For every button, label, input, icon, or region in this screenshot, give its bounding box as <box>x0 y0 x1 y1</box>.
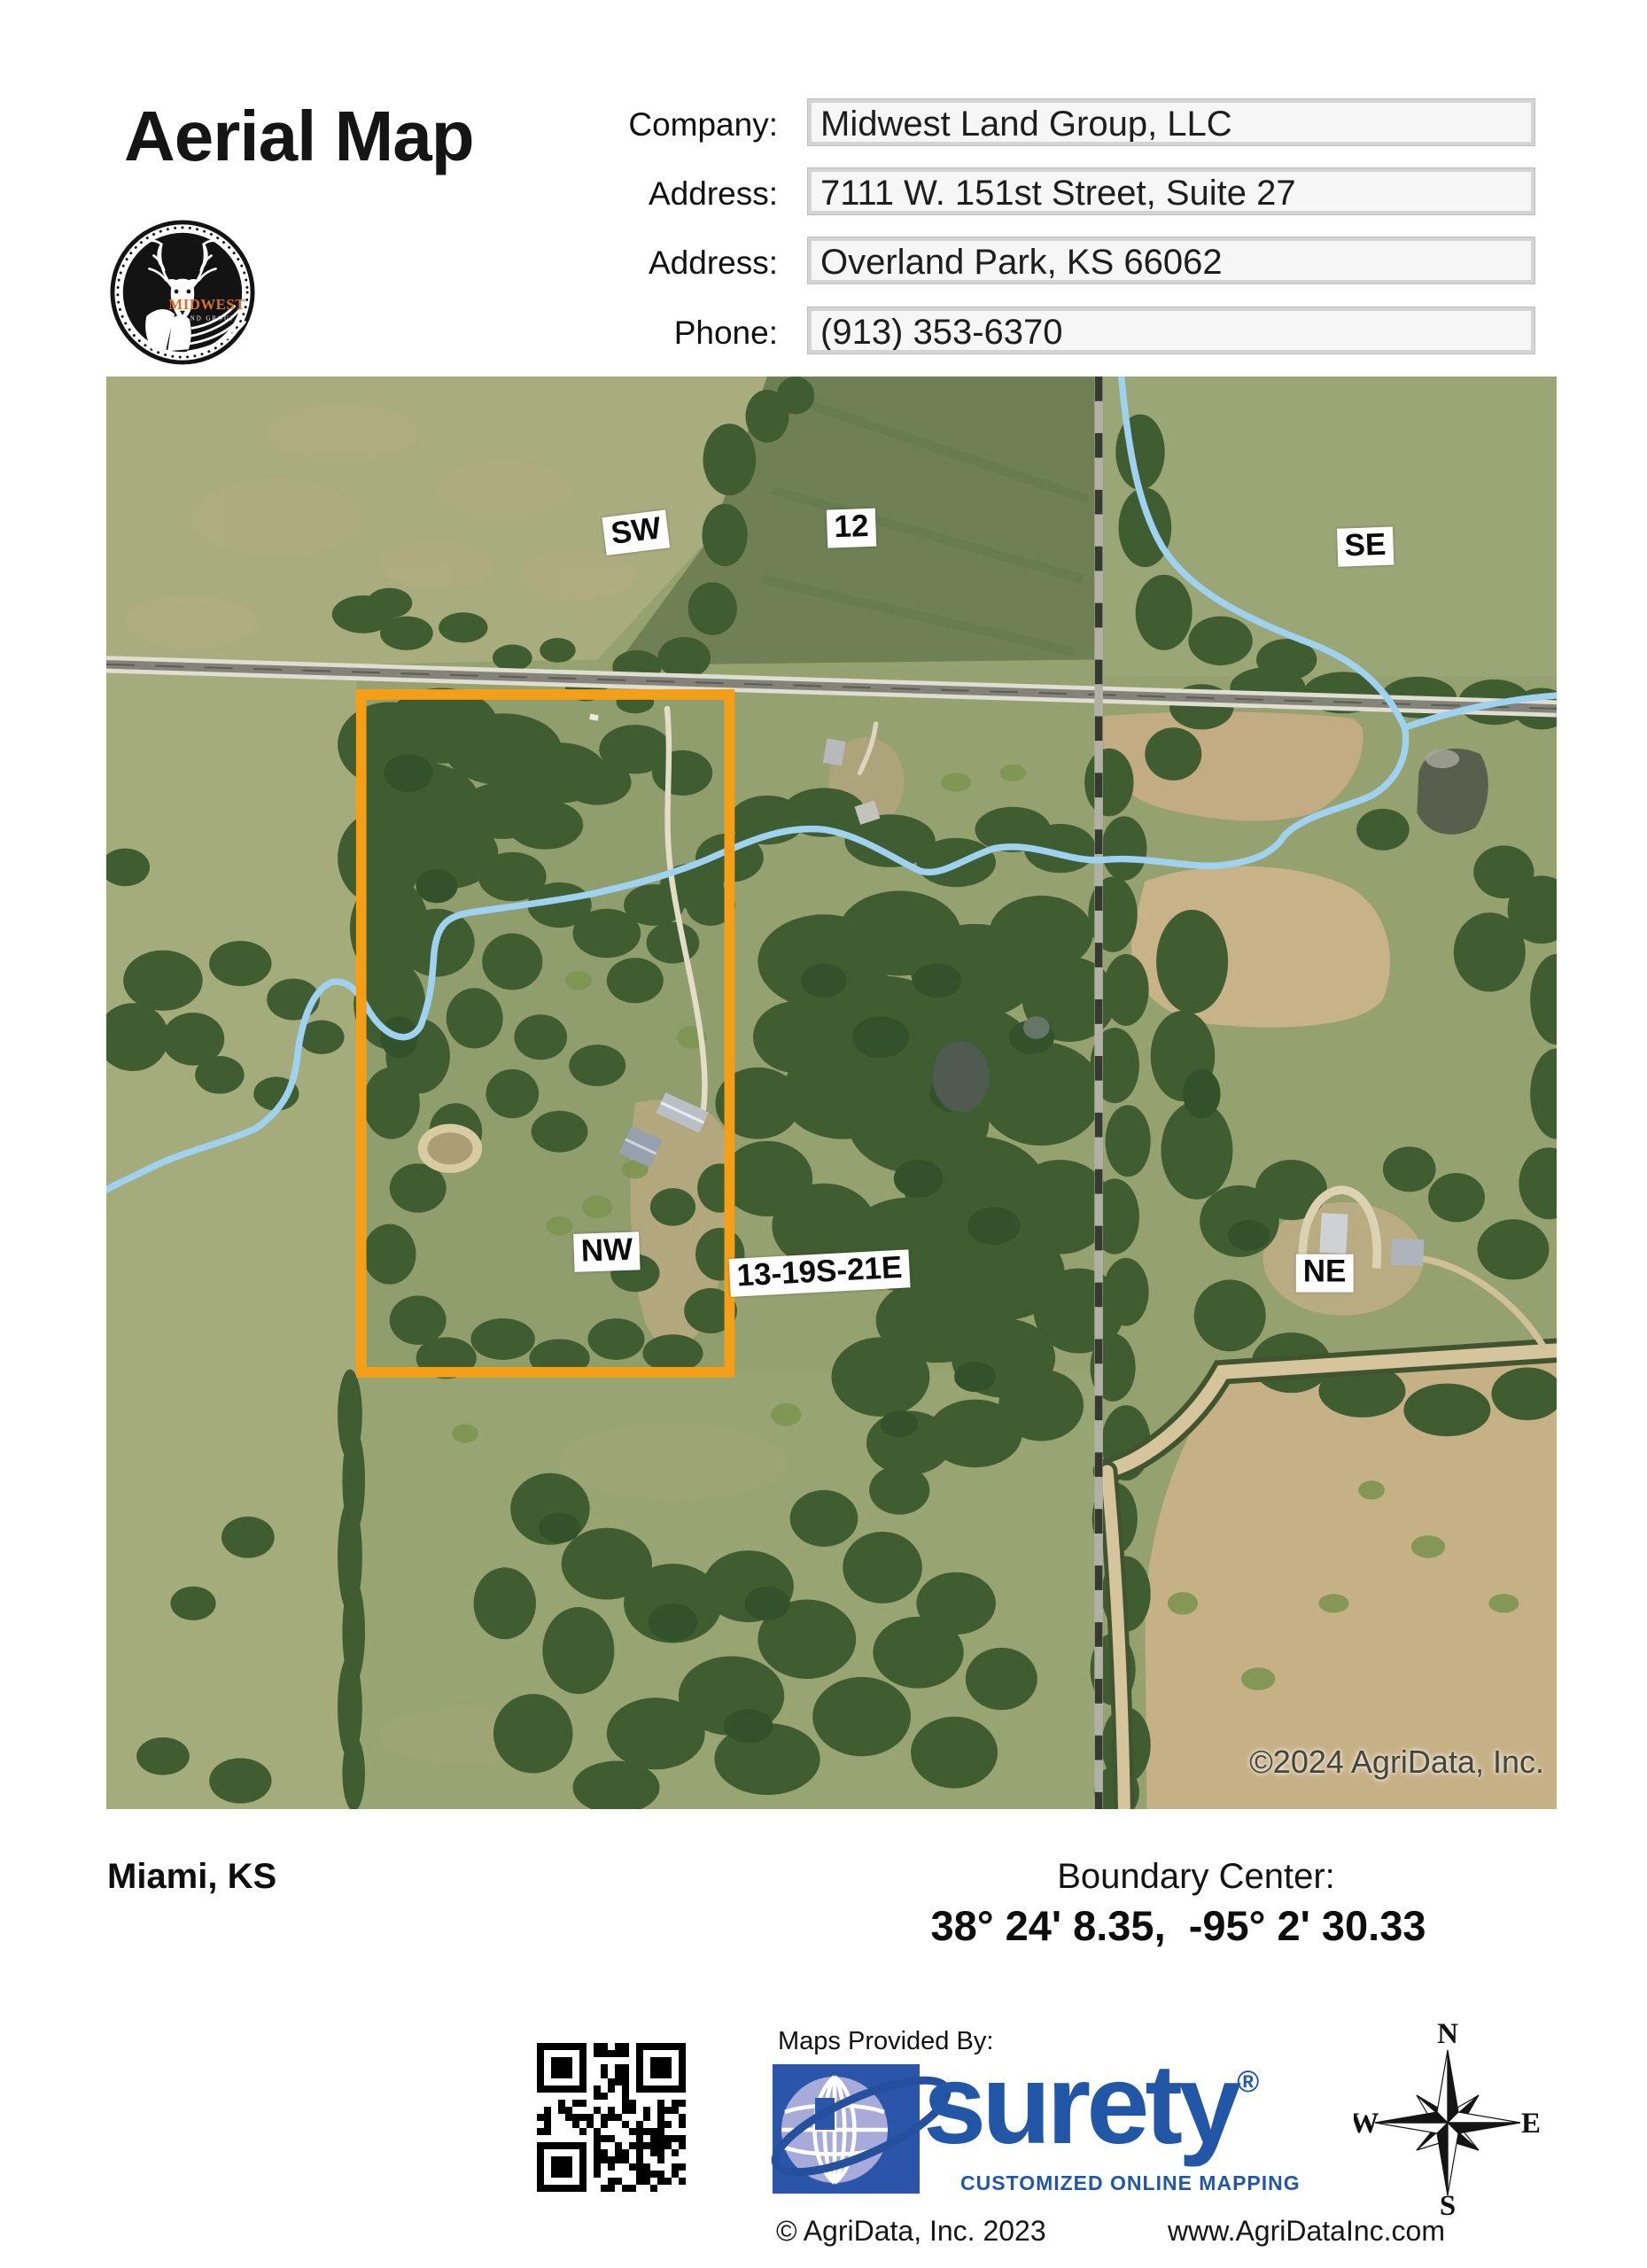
phone-field[interactable]: (913) 353-6370 <box>808 307 1534 353</box>
address1-label: Address: <box>530 175 778 213</box>
section-label-ne: NE <box>1296 1254 1354 1293</box>
page-title: Aerial Map <box>124 96 474 177</box>
registered-mark: ® <box>1237 2065 1259 2099</box>
phone-label: Phone: <box>530 315 778 352</box>
aerial-map-viewport: SW 12 SE NW 13-19S-21E NE ©2024 AgriData… <box>106 377 1557 1809</box>
boundary-center-coordinates: 38° 24' 8.35, -95° 2' 30.33 <box>824 1901 1533 1950</box>
imagery-copyright: ©2024 AgriData, Inc. <box>1249 1744 1544 1781</box>
midwest-land-group-logo: MIDWEST LAND GROUP <box>108 215 257 369</box>
address2-label: Address: <box>530 245 778 282</box>
logo-subtitle-text: LAND GROUP <box>179 316 236 322</box>
address2-field[interactable]: Overland Park, KS 66062 <box>808 237 1534 283</box>
qr-code <box>537 2043 686 2192</box>
compass-rose-icon: N E S W <box>1354 2020 1542 2217</box>
boundary-center-label: Boundary Center: <box>886 1857 1506 1897</box>
logo-brand-text: MIDWEST <box>168 296 245 313</box>
section-label-12: 12 <box>827 509 876 548</box>
company-field[interactable]: Midwest Land Group, LLC <box>808 99 1534 145</box>
aerial-imagery <box>106 377 1557 1809</box>
address1-field[interactable]: 7111 W. 151st Street, Suite 27 <box>808 168 1534 214</box>
company-label: Company: <box>530 106 778 144</box>
agridata-copyright: © AgriData, Inc. 2023 <box>776 2215 1046 2248</box>
section-label-nw: NW <box>573 1231 641 1271</box>
compass-n-label: N <box>1437 2020 1458 2050</box>
compass-w-label: W <box>1354 2108 1379 2140</box>
surety-wordmark: surety <box>923 2041 1237 2168</box>
agridata-url[interactable]: www.AgriDataInc.com <box>1168 2215 1445 2248</box>
county-state-label: Miami, KS <box>107 1857 276 1897</box>
section-label-se: SE <box>1337 527 1394 567</box>
section-label-sw: SW <box>602 510 670 555</box>
surety-logo-text: surety® <box>923 2048 1259 2162</box>
compass-s-label: S <box>1440 2190 1456 2217</box>
compass-e-label: E <box>1521 2108 1541 2140</box>
aerial-map-report-page: Aerial Map <box>0 0 1647 2268</box>
surety-tagline: CUSTOMIZED ONLINE MAPPING <box>960 2171 1301 2195</box>
